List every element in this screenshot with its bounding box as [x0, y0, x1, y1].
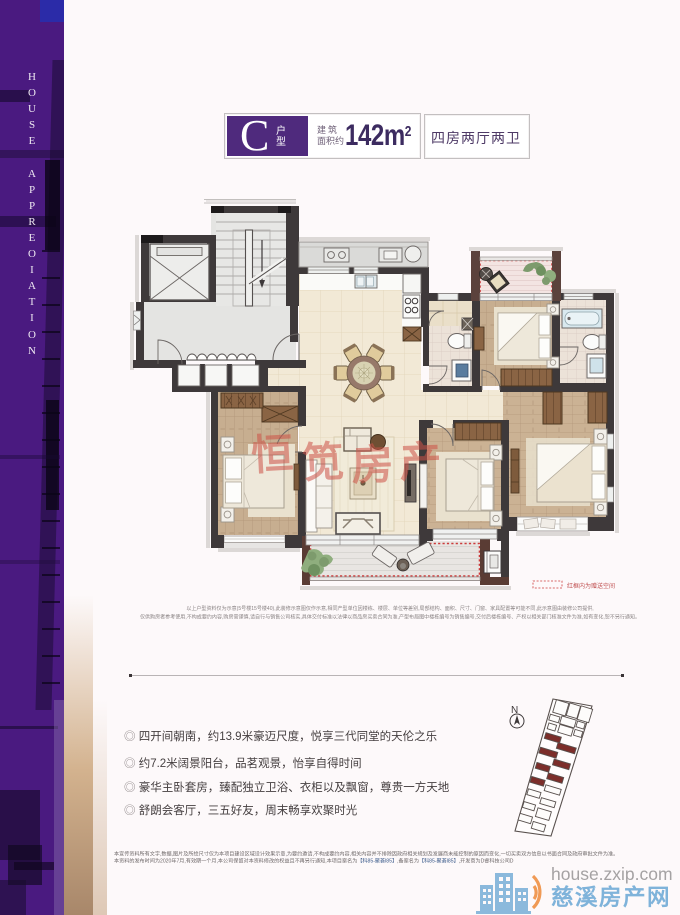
svg-text:红框内为赠送空间: 红框内为赠送空间 — [567, 582, 615, 590]
svg-text:笕: 笕 — [301, 439, 345, 488]
svg-text:产: 产 — [399, 439, 443, 487]
svg-text:恒: 恒 — [250, 431, 294, 480]
svg-text:房: 房 — [351, 442, 395, 490]
